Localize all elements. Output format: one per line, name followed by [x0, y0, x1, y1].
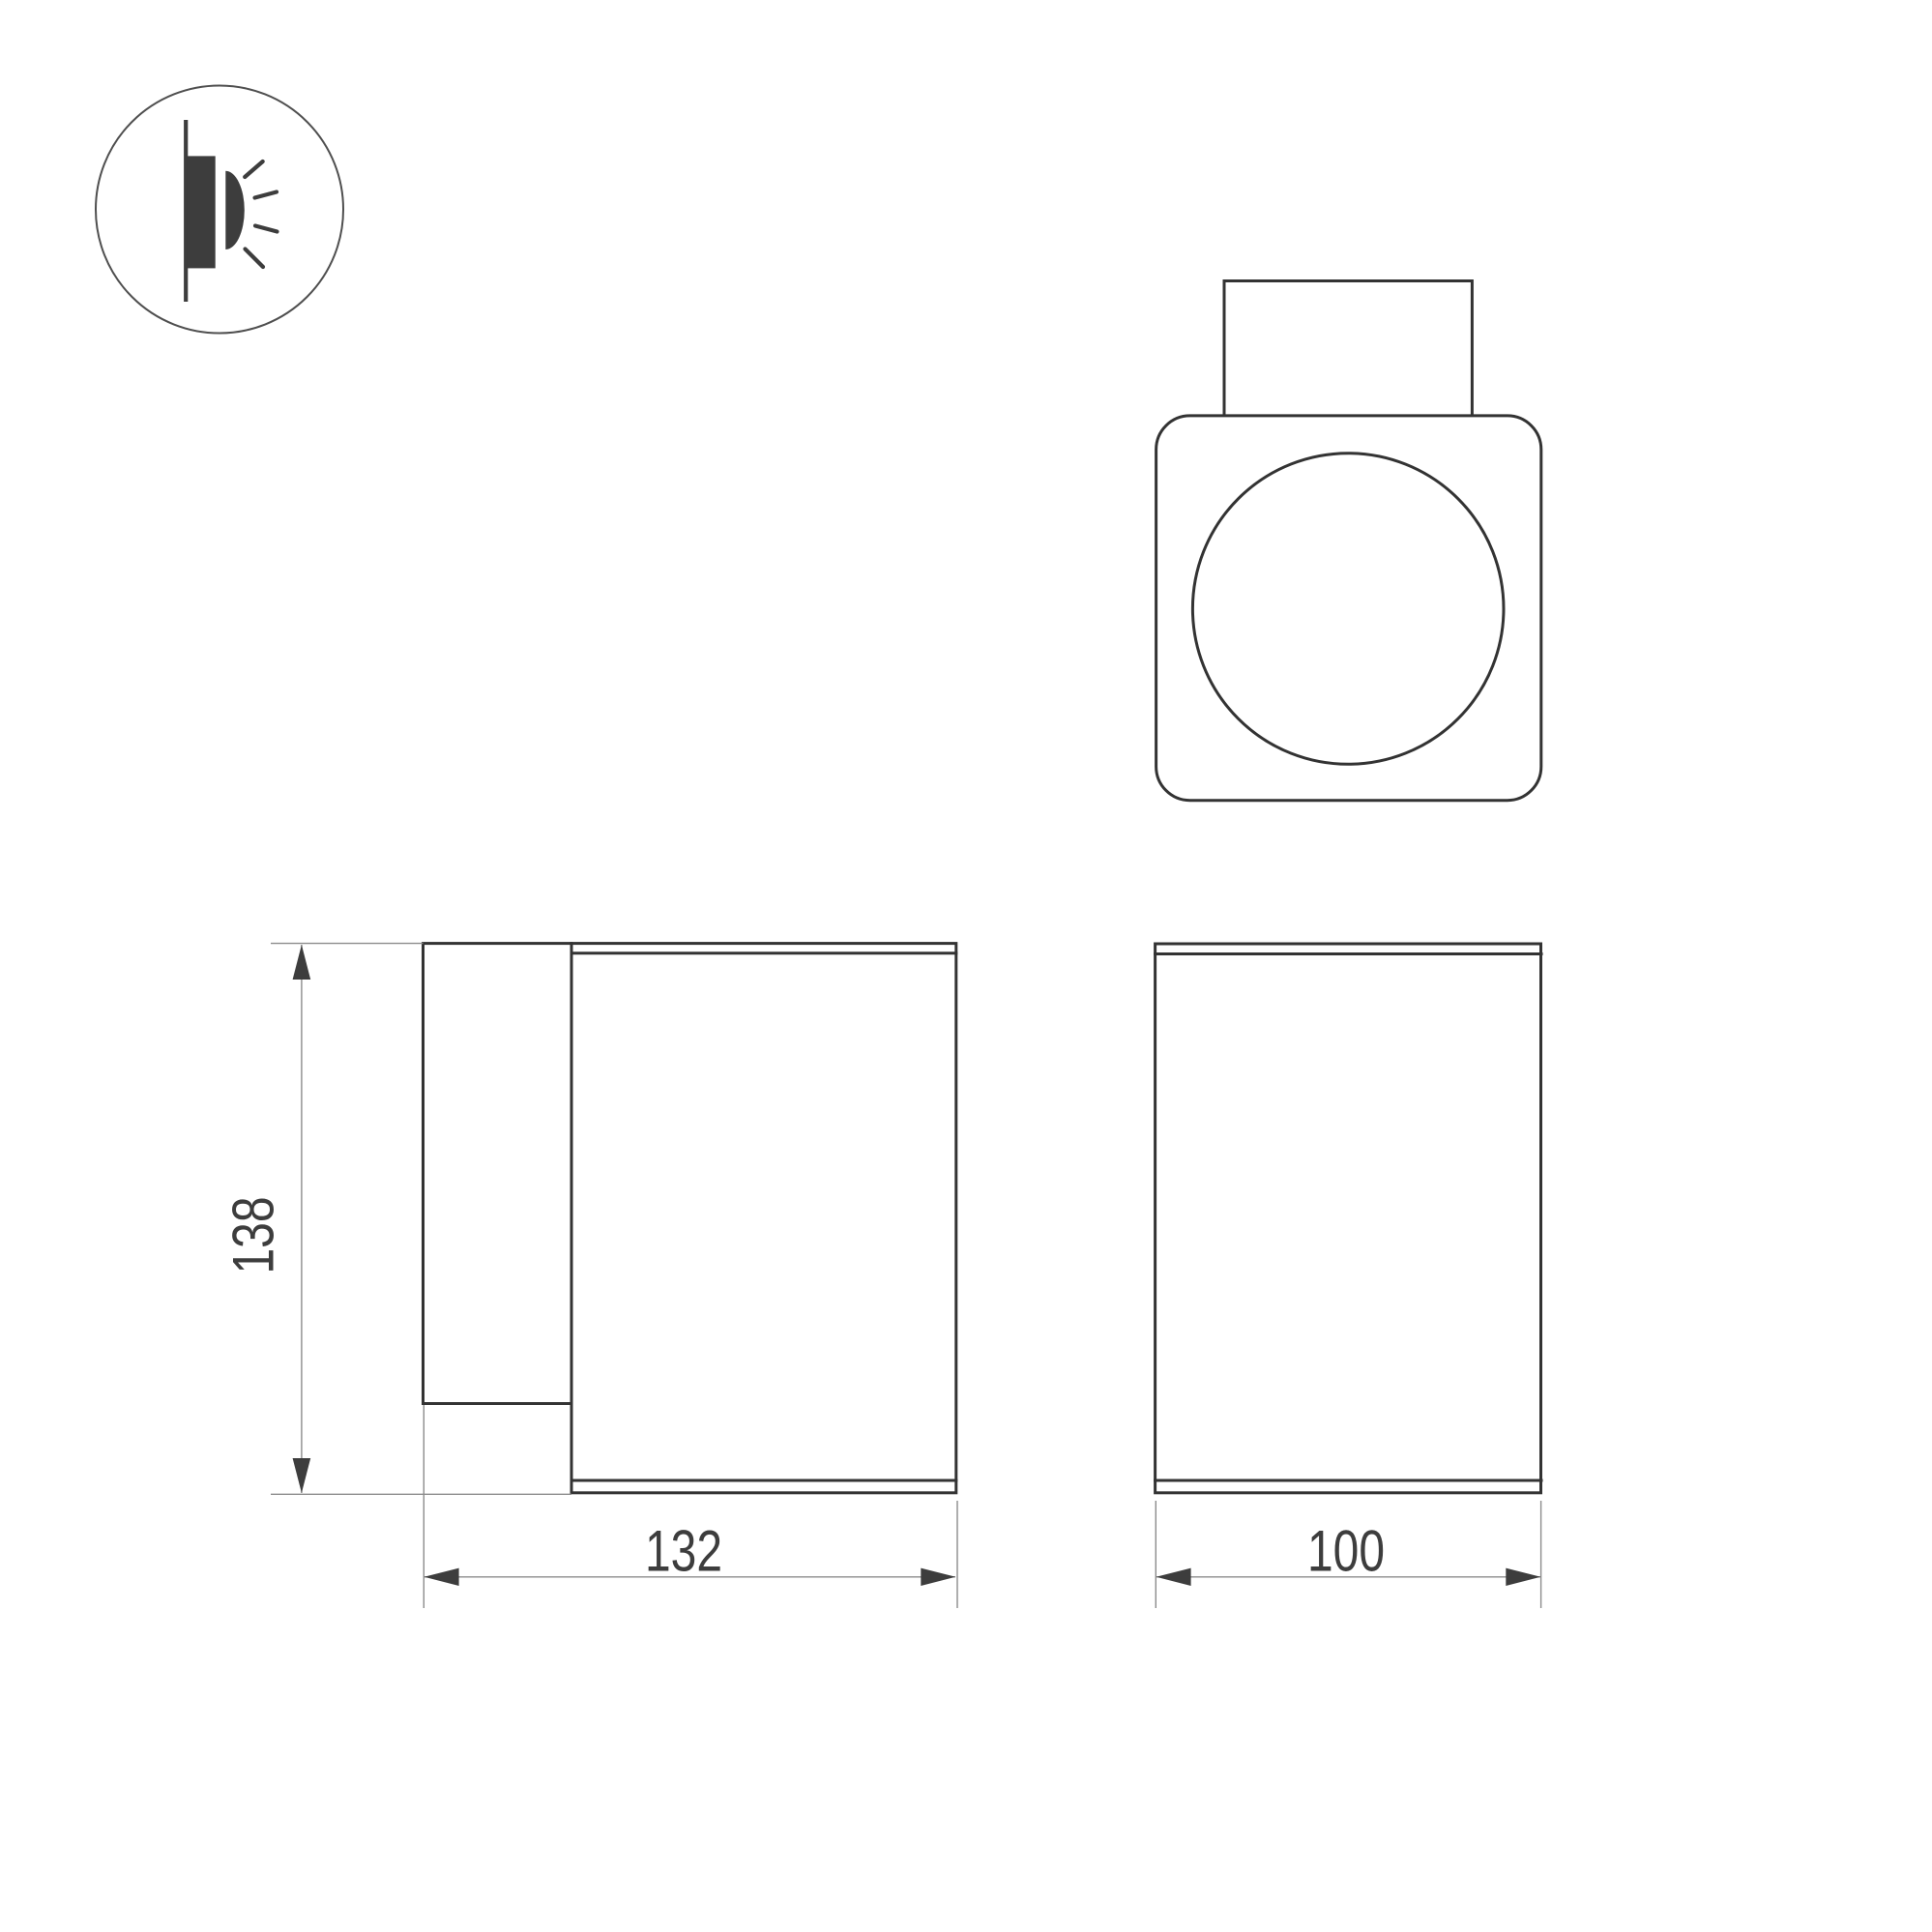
svg-text:100: 100: [1307, 1518, 1385, 1583]
svg-text:132: 132: [645, 1518, 722, 1583]
svg-text:138: 138: [220, 1197, 285, 1274]
